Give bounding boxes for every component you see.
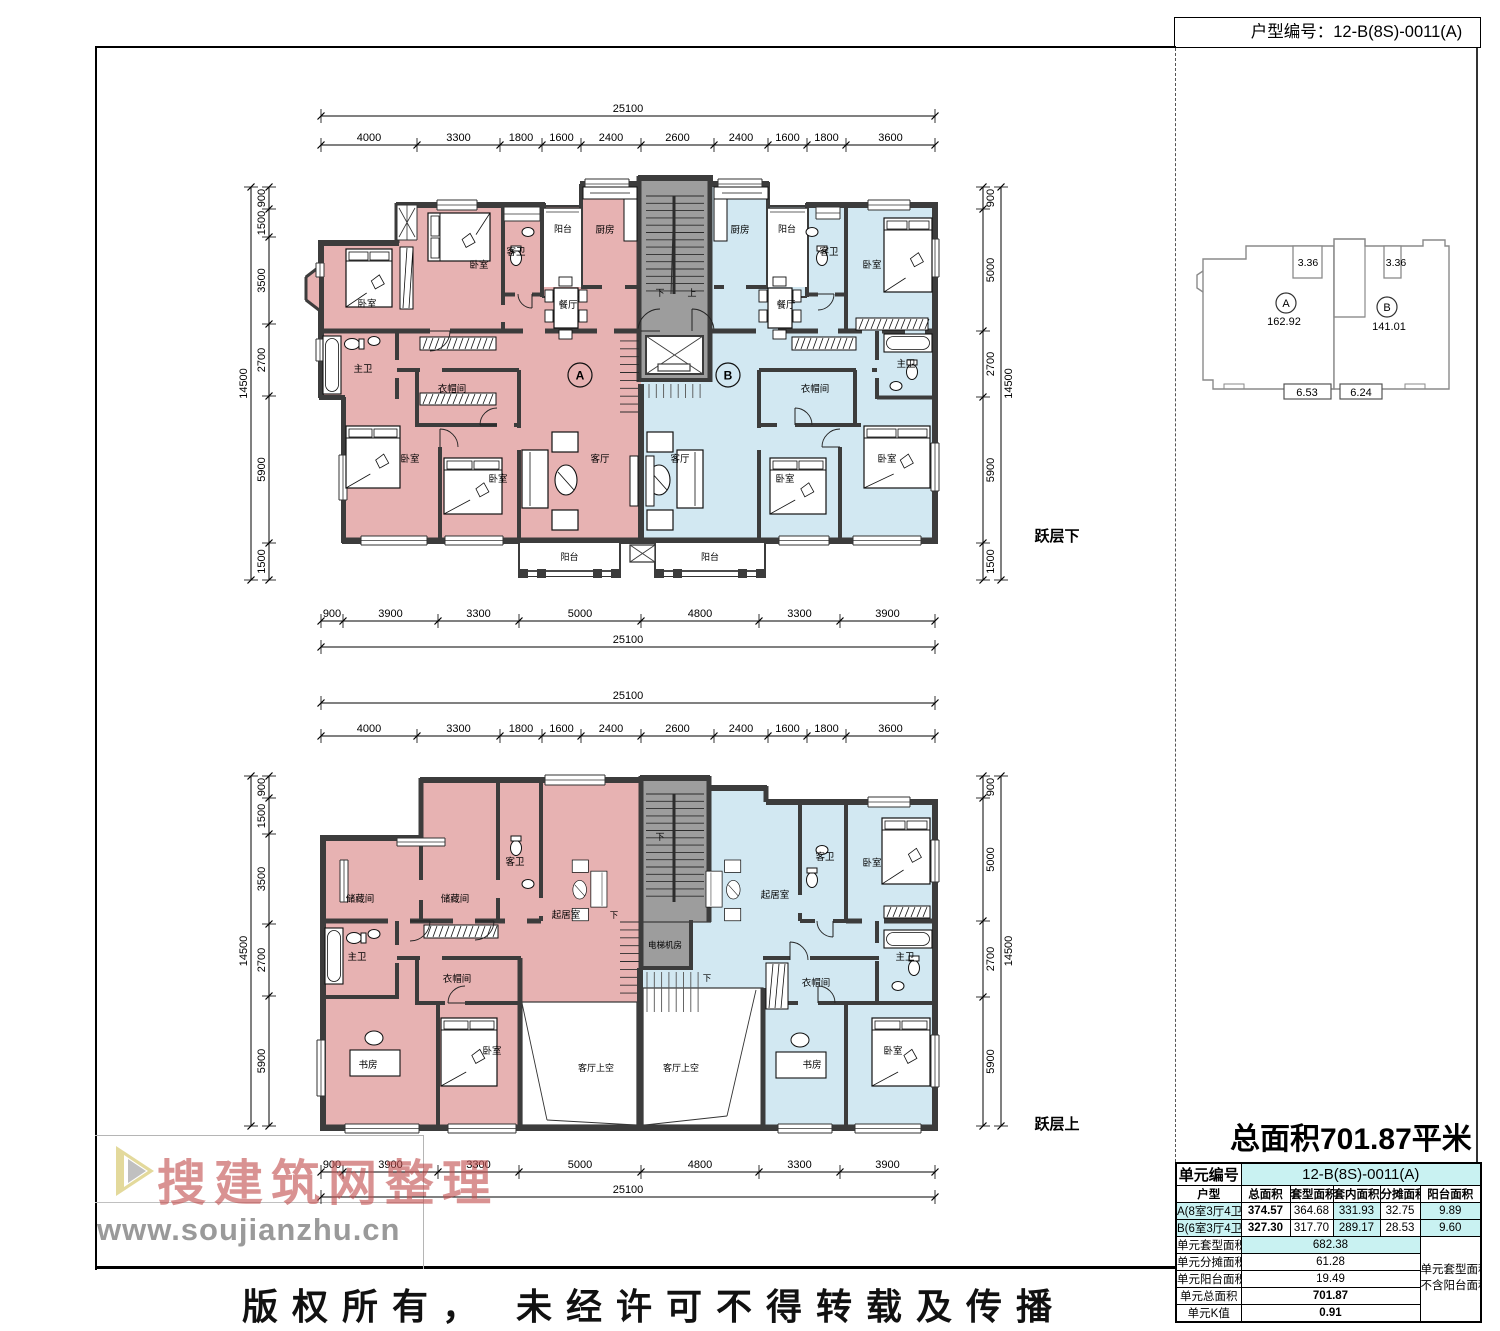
svg-text:1500: 1500 (256, 211, 268, 235)
svg-text:2400: 2400 (599, 723, 623, 735)
svg-text:3300: 3300 (787, 608, 811, 620)
svg-text:1800: 1800 (509, 132, 533, 144)
svg-text:客卫: 客卫 (819, 246, 839, 258)
svg-text:起居室: 起居室 (552, 909, 581, 921)
svg-text:141.01: 141.01 (1372, 321, 1406, 333)
svg-text:A: A (1282, 298, 1290, 310)
svg-text:1600: 1600 (549, 723, 573, 735)
svg-text:阳台: 阳台 (778, 223, 796, 234)
svg-text:3300: 3300 (446, 723, 470, 735)
svg-text:跃层下: 跃层下 (1034, 528, 1079, 545)
svg-text:客卫: 客卫 (505, 856, 525, 868)
svg-text:书房: 书房 (802, 1059, 821, 1071)
svg-text:1800: 1800 (814, 132, 838, 144)
svg-text:5900: 5900 (985, 458, 997, 482)
svg-text:2700: 2700 (985, 947, 997, 971)
svg-text:厨房: 厨房 (730, 224, 749, 236)
svg-text:卧室: 卧室 (469, 259, 488, 271)
svg-text:主卫: 主卫 (896, 358, 916, 370)
svg-text:A: A (576, 369, 585, 383)
svg-text:2400: 2400 (729, 723, 753, 735)
svg-text:阳台: 阳台 (560, 551, 578, 562)
svg-text:900: 900 (985, 189, 997, 207)
svg-text:1800: 1800 (814, 723, 838, 735)
svg-text:阳台: 阳台 (554, 223, 572, 234)
svg-text:25100: 25100 (613, 1184, 644, 1196)
svg-text:2700: 2700 (985, 352, 997, 376)
svg-text:下: 下 (655, 832, 664, 842)
svg-text:卧室: 卧室 (482, 1045, 501, 1057)
svg-text:餐厅: 餐厅 (558, 299, 578, 311)
svg-text:3900: 3900 (378, 608, 402, 620)
svg-text:2600: 2600 (665, 723, 689, 735)
svg-text:起居室: 起居室 (761, 889, 790, 901)
svg-text:1500: 1500 (256, 549, 268, 573)
svg-text:电梯机房: 电梯机房 (648, 940, 682, 950)
svg-text:主卫: 主卫 (895, 951, 915, 963)
svg-text:5900: 5900 (256, 1049, 268, 1073)
svg-text:卧室: 卧室 (883, 1045, 902, 1057)
svg-text:1600: 1600 (775, 723, 799, 735)
svg-text:1600: 1600 (775, 132, 799, 144)
svg-text:2400: 2400 (599, 132, 623, 144)
svg-text:1800: 1800 (509, 723, 533, 735)
svg-text:4000: 4000 (357, 132, 381, 144)
svg-text:衣帽间: 衣帽间 (802, 977, 831, 989)
svg-text:储藏间: 储藏间 (346, 893, 375, 905)
svg-text:卧室: 卧室 (862, 857, 881, 869)
svg-text:4000: 4000 (357, 723, 381, 735)
svg-text:3.36: 3.36 (1386, 257, 1407, 269)
svg-text:6.24: 6.24 (1350, 387, 1371, 399)
svg-text:1600: 1600 (549, 132, 573, 144)
svg-text:主卫: 主卫 (347, 951, 367, 963)
svg-text:2400: 2400 (729, 132, 753, 144)
svg-text:900: 900 (323, 608, 341, 620)
svg-text:3900: 3900 (875, 1159, 899, 1171)
svg-text:2700: 2700 (256, 948, 268, 972)
svg-text:4800: 4800 (688, 608, 712, 620)
svg-text:5900: 5900 (256, 457, 268, 481)
svg-text:3500: 3500 (256, 268, 268, 292)
svg-text:衣帽间: 衣帽间 (801, 383, 830, 395)
svg-text:下: 下 (655, 288, 664, 298)
svg-text:25100: 25100 (613, 690, 644, 702)
svg-text:上: 上 (687, 288, 696, 298)
svg-text:900: 900 (985, 778, 997, 796)
svg-text:5900: 5900 (985, 1049, 997, 1073)
svg-text:客卫: 客卫 (815, 851, 835, 863)
svg-text:25100: 25100 (613, 103, 644, 115)
svg-text:储藏间: 储藏间 (441, 893, 470, 905)
svg-text:900: 900 (256, 189, 268, 207)
svg-text:卧室: 卧室 (357, 298, 376, 310)
svg-text:客厅上空: 客厅上空 (578, 1062, 614, 1073)
svg-text:5000: 5000 (985, 847, 997, 871)
svg-text:14500: 14500 (238, 936, 250, 967)
svg-text:14500: 14500 (238, 368, 250, 399)
svg-text:卧室: 卧室 (775, 473, 794, 485)
svg-text:下: 下 (703, 973, 712, 983)
svg-text:6.53: 6.53 (1296, 387, 1317, 399)
svg-text:客厅: 客厅 (670, 453, 690, 465)
svg-text:衣帽间: 衣帽间 (443, 973, 472, 985)
svg-text:162.92: 162.92 (1267, 316, 1301, 328)
svg-text:3500: 3500 (256, 867, 268, 891)
svg-text:3300: 3300 (787, 1159, 811, 1171)
svg-text:阳台: 阳台 (701, 551, 719, 562)
svg-text:客卫: 客卫 (506, 246, 526, 258)
svg-text:3.36: 3.36 (1298, 257, 1319, 269)
svg-text:1500: 1500 (256, 804, 268, 828)
svg-text:B: B (1383, 302, 1390, 314)
svg-text:主卫: 主卫 (353, 363, 373, 375)
svg-text:卧室: 卧室 (862, 259, 881, 271)
svg-text:衣帽间: 衣帽间 (438, 383, 467, 395)
svg-text:书房: 书房 (358, 1059, 377, 1071)
svg-text:14500: 14500 (1003, 936, 1015, 967)
svg-text:跃层上: 跃层上 (1034, 1116, 1079, 1133)
svg-text:卧室: 卧室 (400, 453, 419, 465)
svg-text:卧室: 卧室 (877, 453, 896, 465)
svg-text:厨房: 厨房 (595, 224, 614, 236)
svg-text:2700: 2700 (256, 348, 268, 372)
svg-text:5000: 5000 (985, 258, 997, 282)
svg-text:14500: 14500 (1003, 368, 1015, 399)
svg-text:3600: 3600 (878, 723, 902, 735)
svg-text:2600: 2600 (665, 132, 689, 144)
svg-text:客厅上空: 客厅上空 (663, 1062, 699, 1073)
svg-text:900: 900 (256, 778, 268, 796)
svg-text:1500: 1500 (985, 549, 997, 573)
svg-text:下: 下 (610, 910, 619, 920)
svg-text:3600: 3600 (878, 132, 902, 144)
svg-text:卧室: 卧室 (488, 473, 507, 485)
svg-text:B: B (724, 369, 733, 383)
svg-text:3300: 3300 (446, 132, 470, 144)
svg-text:5000: 5000 (568, 1159, 592, 1171)
svg-text:5000: 5000 (568, 608, 592, 620)
svg-text:4800: 4800 (688, 1159, 712, 1171)
svg-text:3900: 3900 (875, 608, 899, 620)
svg-text:客厅: 客厅 (590, 453, 610, 465)
svg-text:3300: 3300 (466, 608, 490, 620)
svg-text:餐厅: 餐厅 (776, 299, 796, 311)
svg-text:25100: 25100 (613, 634, 644, 646)
